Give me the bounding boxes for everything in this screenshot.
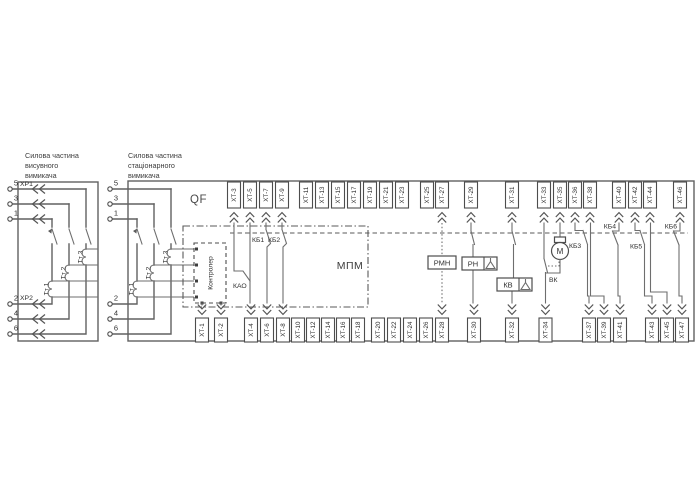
label-kb4: КБ4: [604, 224, 616, 231]
terminal-block: ХТ-36: [569, 182, 582, 223]
detachable-connector-icon: [198, 305, 206, 315]
terminal-block: ХТ-39: [598, 305, 611, 343]
breaker-pole-contact: [137, 229, 176, 244]
relay-columns: РМН РН КВ: [428, 223, 532, 303]
terminal-label: ХТ-18: [355, 321, 362, 338]
terminal-label: ХТ-33: [541, 186, 548, 203]
pin-number: 3: [114, 194, 118, 203]
terminal-label: ХТ-25: [424, 186, 431, 203]
label-mpm: МПМ: [337, 260, 364, 272]
label-kb6: КБ6: [665, 224, 677, 231]
terminal-label: ХТ-4: [248, 323, 255, 337]
terminal-label: ХТ-32: [509, 321, 516, 338]
pin-circle: [108, 317, 112, 321]
ct-label: Тт 2: [145, 266, 152, 279]
terminal-block: ХТ-38: [584, 182, 597, 223]
pin-number: 6: [14, 324, 18, 333]
ct-label: Тт 1: [43, 282, 50, 295]
title-line: Силова частина: [128, 151, 182, 160]
pin-circle: [8, 332, 12, 336]
terminal-block: ХТ-19: [364, 182, 377, 208]
label-kv: КВ: [503, 281, 512, 290]
terminal-block: ХТ-23: [396, 182, 409, 208]
terminal-label: ХТ-35: [557, 186, 564, 203]
terminal-label: ХТ-13: [319, 186, 326, 203]
detachable-connector-icon: [541, 305, 549, 315]
terminal-label: ХТ-31: [509, 186, 516, 203]
terminal-label: ХТ-36: [572, 186, 579, 203]
detachable-connector-icon: [648, 305, 656, 315]
terminal-block: ХТ-20: [372, 318, 385, 342]
terminal-label: ХТ-8: [280, 323, 287, 337]
ct-label: Тт 3: [77, 250, 84, 263]
detachable-connector-icon: [508, 213, 516, 223]
ct-label: Тт 3: [162, 250, 169, 263]
wire: [137, 189, 171, 227]
pin-number: 4: [14, 309, 18, 318]
motor-terminal-box: [555, 237, 566, 243]
terminal-label: ХТ-41: [617, 321, 624, 338]
terminal-label: ХТ-17: [351, 186, 358, 203]
terminal-block: ХТ-33: [538, 182, 551, 223]
breaker-control-schematic: Силова частина висувного вимикача Силова…: [0, 0, 700, 500]
terminal-label: ХТ-9: [279, 188, 286, 202]
kb1-contact-wire: [266, 223, 271, 303]
terminal-label: ХТ-39: [601, 321, 608, 338]
junction-dot: [195, 280, 198, 283]
terminal-label: ХТ-44: [647, 186, 654, 203]
junction-dot: [195, 296, 198, 299]
terminal-block: ХТ-45: [661, 305, 674, 343]
terminal-block: ХТ-8: [277, 305, 290, 343]
terminal-label: ХТ-26: [423, 321, 430, 338]
wire: [52, 249, 98, 297]
detachable-connector-icon: [556, 213, 564, 223]
terminal-label: ХТ-14: [325, 321, 332, 338]
pin-circle: [108, 187, 112, 191]
detachable-connector-icon: [571, 213, 579, 223]
terminal-label: ХТ-28: [439, 321, 446, 338]
terminal-block: ХТ-2: [215, 305, 228, 343]
terminal-block: ХТ-5: [244, 182, 257, 223]
terminal-label: ХТ-43: [649, 321, 656, 338]
label-motor: М: [557, 247, 564, 256]
terminal-label: ХТ-46: [677, 186, 684, 203]
plug-contact-icons: [33, 185, 46, 339]
label-rn: РН: [468, 260, 478, 269]
detachable-connector-icon: [438, 213, 446, 223]
detachable-connector-icon: [615, 213, 623, 223]
withdrawable-breaker-section: Тт 1 Тт 2 Тт 3 ХР1 ХР2: [12, 181, 98, 341]
label-qf: QF: [190, 194, 207, 206]
detachable-connector-icon: [678, 305, 686, 315]
terminal-label: ХТ-37: [586, 321, 593, 338]
terminal-label: ХТ-47: [679, 321, 686, 338]
kb4-wire: [613, 223, 621, 303]
terminal-block: ХТ-17: [348, 182, 361, 208]
terminal-label: ХТ-40: [616, 186, 623, 203]
terminal-block: ХТ-15: [332, 182, 345, 208]
junction-dot: [195, 264, 198, 267]
wire: [591, 223, 605, 303]
ct-label: Тт 2: [60, 266, 67, 279]
terminal-block: ХТ-18: [352, 318, 365, 342]
terminal-block: ХТ-46: [674, 182, 687, 223]
terminal-label: ХТ-19: [367, 186, 374, 203]
detachable-connector-icon: [467, 213, 475, 223]
terminal-block: ХТ-40: [613, 182, 626, 223]
terminal-label: ХТ-22: [391, 321, 398, 338]
pin-circle: [8, 202, 12, 206]
detachable-connector-icon: [263, 305, 271, 315]
top-terminal-row: ХТ-3ХТ-5ХТ-7ХТ-9ХТ-11ХТ-13ХТ-15ХТ-17ХТ-1…: [228, 182, 687, 223]
label-kb1: КБ1: [252, 237, 264, 244]
terminal-block: ХТ-6: [261, 305, 274, 343]
ct-label: Тт 1: [128, 282, 135, 295]
kao-contact-wire: [234, 223, 250, 281]
terminal-label: ХТ-42: [632, 186, 639, 203]
pin-circle: [8, 187, 12, 191]
terminal-block: ХТ-27: [436, 182, 449, 223]
terminal-block: ХТ-31: [506, 182, 519, 223]
terminal-label: ХТ-12: [310, 321, 317, 338]
detachable-connector-icon: [279, 305, 287, 315]
stationary-section-title: Силова частина стаціонарного вимикача: [128, 151, 182, 180]
connector-label-xp2: ХР2: [20, 295, 33, 302]
terminal-label: ХТ-6: [264, 323, 271, 337]
terminal-block: ХТ-13: [316, 182, 329, 208]
wire: [651, 223, 668, 303]
terminal-label: ХТ-34: [543, 321, 550, 338]
terminal-label: ХТ-10: [295, 321, 302, 338]
detachable-connector-icon: [646, 213, 654, 223]
detachable-connector-icon: [585, 305, 593, 315]
aux-contact-columns: КБ3 КБ4 КБ5 КБ6: [569, 223, 682, 303]
terminal-label: ХТ-15: [335, 186, 342, 203]
controller-box: Контролер: [194, 243, 226, 305]
detachable-connector-icon: [540, 213, 548, 223]
terminal-block: ХТ-12: [307, 318, 320, 342]
terminal-block: ХТ-4: [245, 305, 258, 343]
terminal-block: ХТ-37: [583, 305, 596, 343]
bottom-terminal-row: ХТ-1ХТ-2ХТ-4ХТ-6ХТ-8ХТ-10ХТ-12ХТ-14ХТ-16…: [196, 305, 689, 343]
terminal-label: ХТ-29: [468, 186, 475, 203]
terminal-block: ХТ-32: [506, 305, 519, 343]
detachable-connector-icon: [470, 305, 478, 315]
terminal-block: ХТ-10: [292, 318, 305, 342]
terminal-label: ХТ-30: [471, 321, 478, 338]
terminal-label: ХТ-3: [231, 188, 238, 202]
kb2-contact-wire: [282, 223, 287, 303]
wire: [112, 189, 171, 219]
terminal-block: ХТ-34: [539, 305, 552, 343]
terminal-block: ХТ-47: [676, 305, 689, 343]
mpm-internal-wires: КАО КБ1 КБ2: [233, 223, 287, 303]
breaker-pole-contact: [52, 229, 91, 244]
pin-number: 2: [114, 294, 118, 303]
detachable-connector-icon: [676, 213, 684, 223]
terminal-label: ХТ-27: [439, 186, 446, 203]
pin-circle: [108, 202, 112, 206]
terminal-block: ХТ-14: [322, 318, 335, 342]
pin-number: 3: [14, 194, 18, 203]
pin-circle: [8, 302, 12, 306]
motor-column: М ВК: [544, 223, 569, 303]
terminal-block: ХТ-28: [436, 305, 449, 343]
terminal-label: ХТ-2: [218, 323, 225, 337]
terminal-label: ХТ-23: [399, 186, 406, 203]
schematic-page: Силова частина висувного вимикача Силова…: [0, 0, 700, 500]
kb6-wire: [674, 223, 683, 303]
title-line: стаціонарного: [128, 161, 175, 170]
wire: [12, 189, 86, 219]
terminal-block: ХТ-30: [468, 305, 481, 343]
terminal-label: ХТ-45: [664, 321, 671, 338]
detachable-connector-icon: [508, 305, 516, 315]
terminal-block: ХТ-42: [629, 182, 642, 223]
trip-arrow-icon: [48, 229, 52, 234]
terminal-label: ХТ-20: [375, 321, 382, 338]
terminal-block: ХТ-24: [404, 318, 417, 342]
pin-circle: [8, 317, 12, 321]
terminal-block: ХТ-43: [646, 305, 659, 343]
label-controller: Контролер: [207, 256, 214, 290]
label-kb5: КБ5: [630, 244, 642, 251]
pin-number: 2: [14, 294, 18, 303]
label-kb2: КБ2: [268, 237, 280, 244]
pin-number: 1: [14, 209, 18, 218]
terminal-block: ХТ-7: [260, 182, 273, 223]
terminal-block: ХТ-22: [388, 318, 401, 342]
kb5-wire: [635, 223, 652, 303]
detachable-connector-icon: [262, 213, 270, 223]
terminal-block: ХТ-3: [228, 182, 241, 223]
terminal-label: ХТ-11: [303, 186, 310, 203]
detachable-connector-icon: [230, 213, 238, 223]
pin-circle: [8, 217, 12, 221]
label-kao: КАО: [233, 283, 247, 290]
terminal-label: ХТ-16: [340, 321, 347, 338]
pin-number: 6: [114, 324, 118, 333]
terminal-block: ХТ-29: [465, 182, 478, 223]
terminal-block: ХТ-16: [337, 318, 350, 342]
title-line: висувного: [25, 161, 58, 170]
terminal-block: ХТ-41: [614, 305, 627, 343]
terminal-block: ХТ-21: [380, 182, 393, 208]
terminal-block: ХТ-9: [276, 182, 289, 223]
detachable-connector-icon: [663, 305, 671, 315]
title-line: вимикача: [25, 171, 57, 180]
pin-circle: [108, 217, 112, 221]
detachable-connector-icon: [246, 213, 254, 223]
pin-circle: [108, 332, 112, 336]
detachable-connector-icon: [438, 305, 446, 315]
title-line: вимикача: [128, 171, 160, 180]
label-vk: ВК: [549, 277, 558, 284]
detachable-connector-icon: [247, 305, 255, 315]
terminal-block: ХТ-26: [420, 318, 433, 342]
junction-dot: [195, 248, 198, 251]
terminal-label: ХТ-1: [199, 323, 206, 337]
stationary-breaker-section: Тт 1 Тт 2 Тт 3: [112, 189, 194, 334]
pin-number: 4: [114, 309, 118, 318]
terminal-label: ХТ-21: [383, 186, 390, 203]
withdrawable-section-title: Силова частина висувного вимикача: [25, 151, 79, 180]
wire: [52, 189, 86, 227]
vk-contact-wire: [544, 223, 548, 303]
terminal-block: ХТ-35: [554, 182, 567, 223]
terminal-block: ХТ-1: [196, 305, 209, 343]
terminal-block: ХТ-11: [300, 182, 313, 208]
terminal-block: ХТ-44: [644, 182, 657, 223]
pin-number: 1: [114, 209, 118, 218]
terminal-label: ХТ-5: [247, 188, 254, 202]
pin-circle: [108, 302, 112, 306]
detachable-connector-icon: [616, 305, 624, 315]
title-line: Силова частина: [25, 151, 79, 160]
vk-mechanical-link: [548, 262, 559, 267]
trip-arrow-icon: [133, 229, 137, 234]
pin-number: 5: [114, 179, 118, 188]
terminal-block: ХТ-25: [421, 182, 434, 208]
detachable-connector-icon: [217, 305, 225, 315]
label-kb3: КБ3: [569, 243, 581, 250]
terminal-label: ХТ-7: [263, 188, 270, 202]
terminal-label: ХТ-38: [587, 186, 594, 203]
detachable-connector-icon: [586, 213, 594, 223]
detachable-connector-icon: [600, 305, 608, 315]
kb3-wire: [575, 223, 589, 303]
breaker-pins: 531246531246: [8, 179, 118, 337]
detachable-connector-icon: [278, 213, 286, 223]
terminal-label: ХТ-24: [407, 321, 414, 338]
detachable-connector-icon: [631, 213, 639, 223]
connector-label-xp1: ХР1: [20, 181, 33, 188]
pin-number: 5: [14, 179, 18, 188]
label-rmn: РМН: [434, 259, 451, 268]
